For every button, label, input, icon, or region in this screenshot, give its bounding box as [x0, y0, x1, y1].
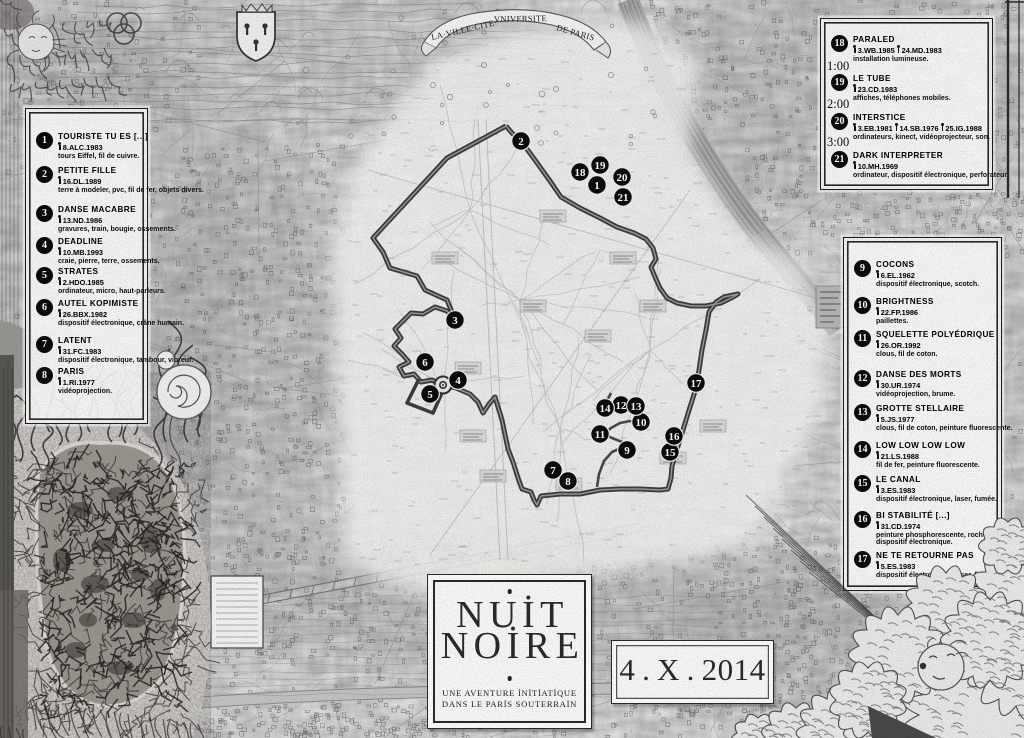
svg-text:12: 12	[616, 400, 628, 412]
svg-text:17: 17	[691, 378, 703, 390]
svg-text:5: 5	[427, 389, 433, 401]
svg-text:10: 10	[636, 417, 648, 429]
svg-text:15: 15	[665, 447, 677, 459]
svg-text:13: 13	[631, 401, 643, 413]
svg-text:18: 18	[575, 167, 587, 179]
svg-text:3: 3	[452, 315, 458, 327]
svg-text:2: 2	[518, 136, 524, 148]
svg-text:20: 20	[617, 172, 629, 184]
svg-text:4: 4	[455, 375, 461, 387]
svg-text:7: 7	[550, 465, 556, 477]
svg-text:19: 19	[595, 160, 607, 172]
svg-text:16: 16	[669, 431, 681, 443]
svg-text:14: 14	[600, 403, 612, 415]
svg-text:21: 21	[618, 192, 629, 204]
svg-text:9: 9	[624, 445, 630, 457]
svg-text:11: 11	[595, 429, 605, 441]
svg-text:8: 8	[565, 476, 571, 488]
svg-text:1: 1	[594, 180, 600, 192]
svg-text:6: 6	[422, 357, 428, 369]
